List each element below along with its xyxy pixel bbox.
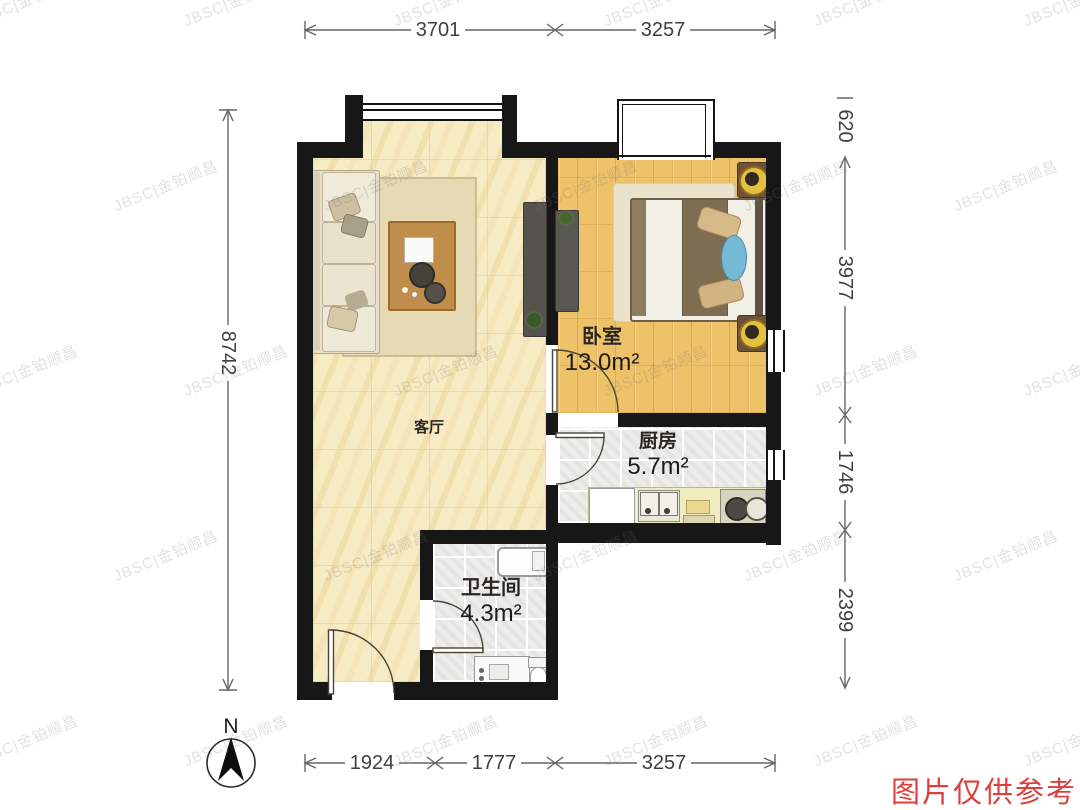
north-compass: N [207,715,255,787]
dim-top-1: 3701 [416,19,461,41]
dim-top-2: 3257 [641,19,686,41]
dim-right-2: 3977 [834,256,856,301]
bathroom-area: 4.3m² [441,600,541,628]
dim-bottom-1: 1924 [350,752,395,774]
kitchen-label: 厨房 5.7m² [608,431,708,480]
kitchen-door [556,433,604,484]
dimension-lines [219,21,853,772]
kitchen-name: 厨房 [608,431,708,453]
bedroom-label: 卧室 13.0m² [552,326,652,377]
dim-right-1: 620 [834,109,856,142]
dim-bottom-3: 3257 [642,752,687,774]
dim-right-3: 1746 [834,450,856,495]
kitchen-area: 5.7m² [608,453,708,481]
bathroom-name: 卫生间 [441,577,541,600]
dim-right-4: 2399 [834,588,856,633]
plan-annotations: 3701 3257 1924 1777 3257 8742 620 3977 1… [0,0,1080,810]
entrance-door [329,630,395,694]
dimension-label-backgrounds [217,19,856,774]
dim-left-1: 8742 [217,331,239,376]
floorplan-canvas: 3701 3257 1924 1777 3257 8742 620 3977 1… [0,0,1080,810]
bedroom-area: 13.0m² [552,349,652,377]
dim-bottom-2: 1777 [472,752,517,774]
disclaimer-text: 图片仅供参考 [891,769,1077,810]
bedroom-name: 卧室 [552,326,652,349]
living-room-name: 客厅 [394,419,464,436]
living-room-label: 客厅 [394,419,464,436]
compass-north-label: N [223,715,238,738]
bathroom-label: 卫生间 4.3m² [441,577,541,628]
